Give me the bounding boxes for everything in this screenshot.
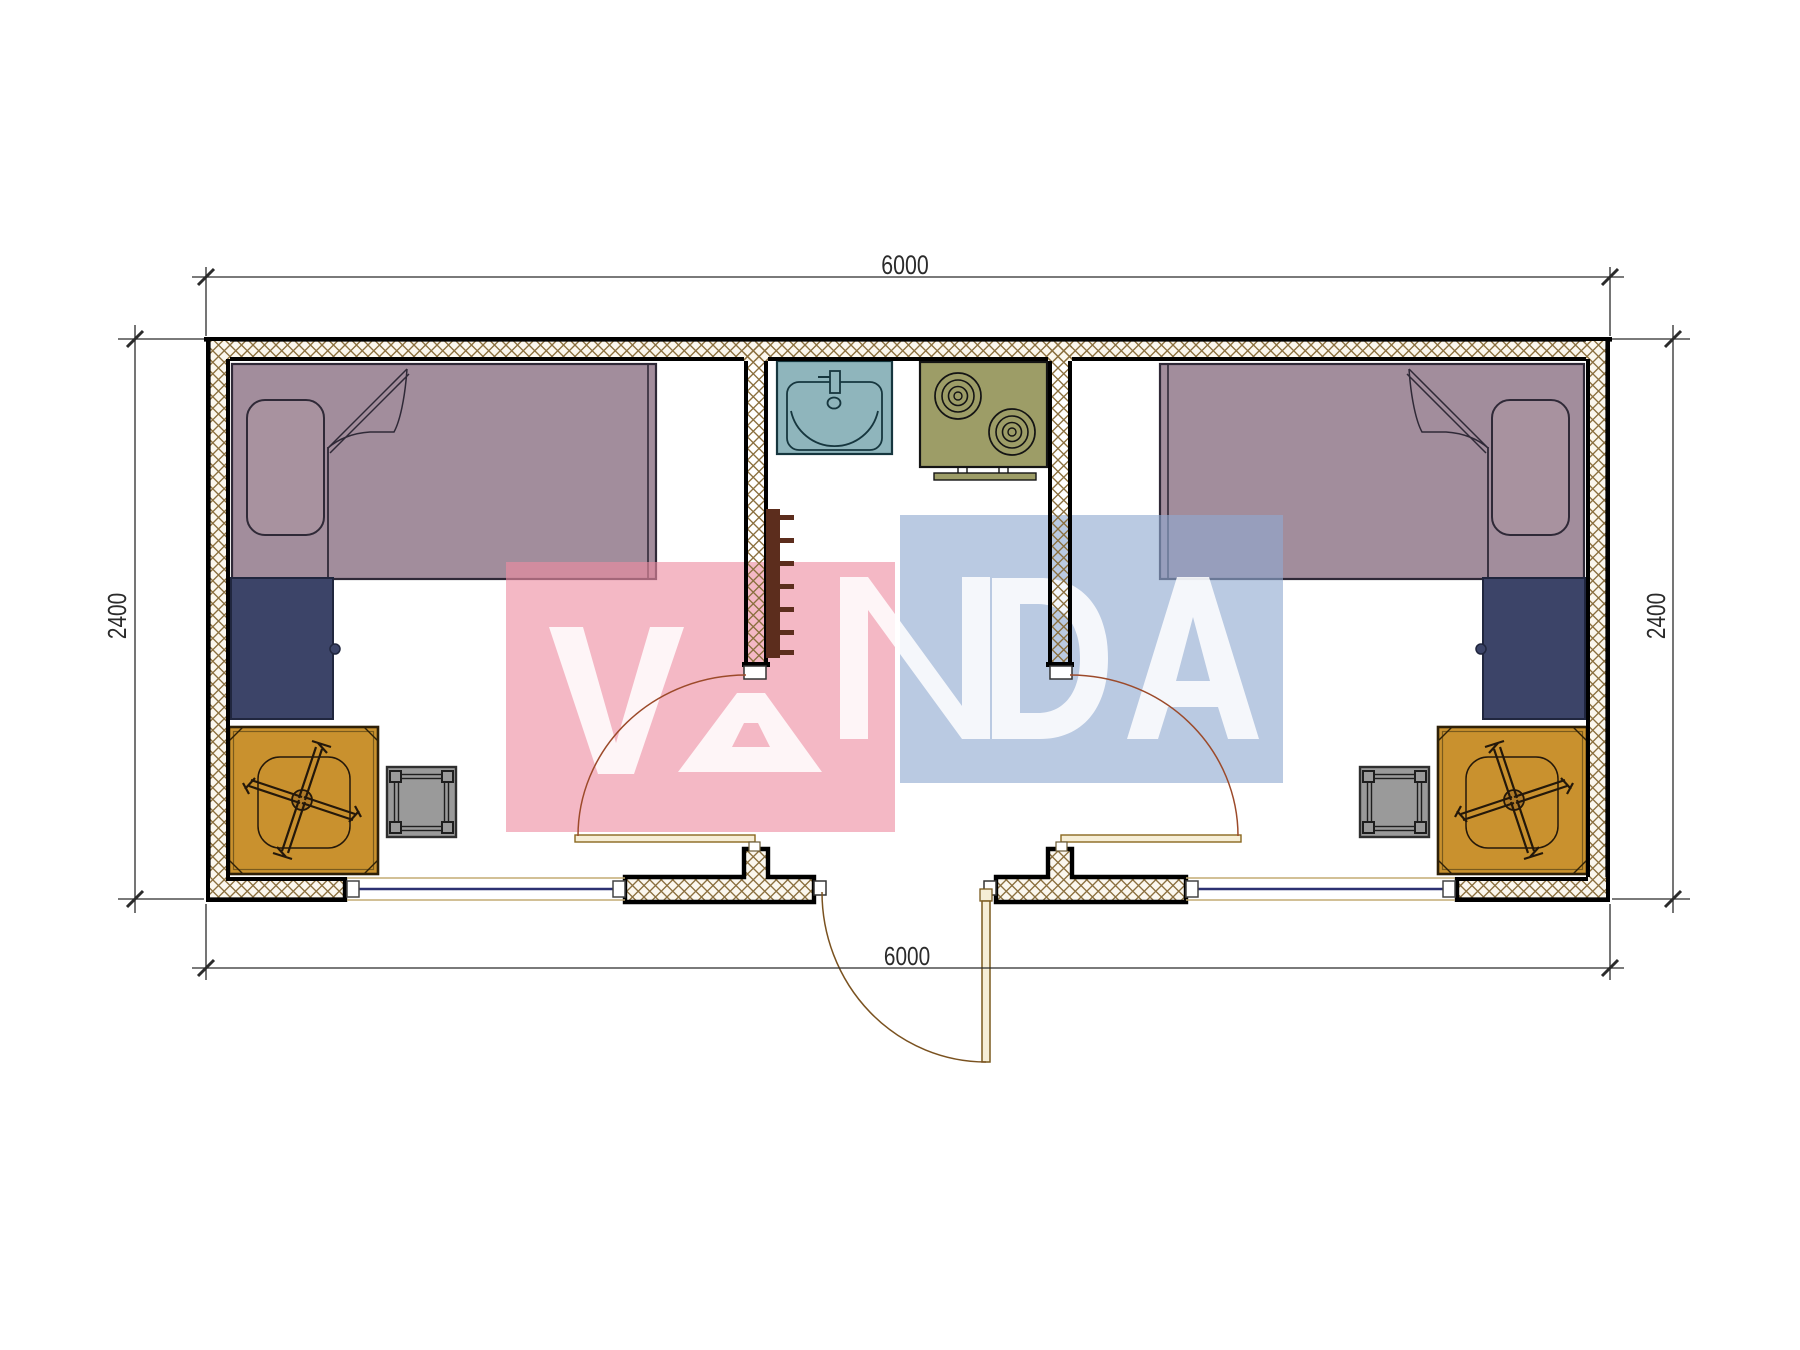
svg-text:2400: 2400 [1642,593,1671,639]
svg-text:6000: 6000 [881,251,928,281]
svg-text:2400: 2400 [103,593,132,639]
svg-text:6000: 6000 [884,942,930,971]
